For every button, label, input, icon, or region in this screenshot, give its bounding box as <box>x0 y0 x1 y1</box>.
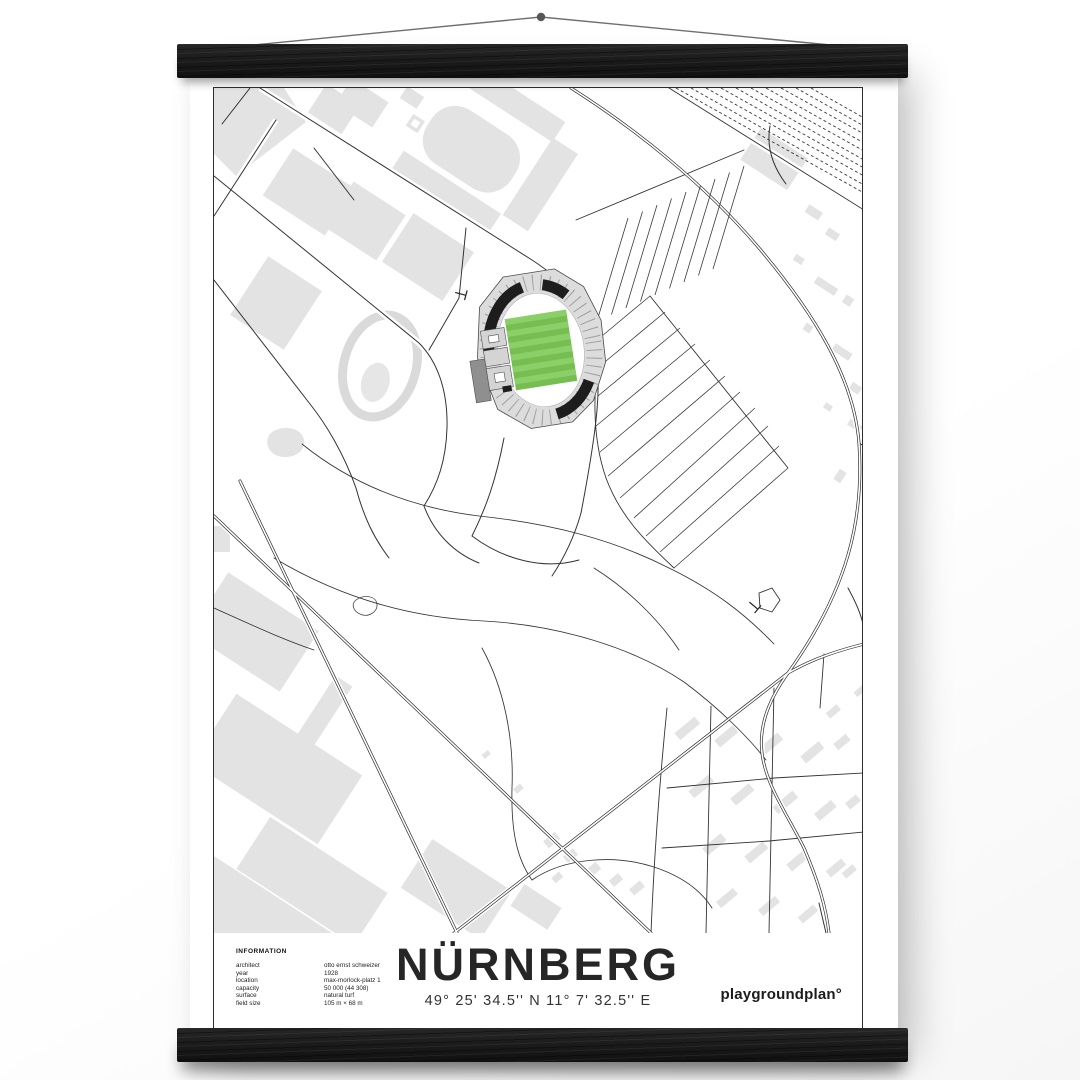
brand-logo: playgroundplan° <box>721 986 843 1003</box>
parking-rows-upper <box>597 166 744 321</box>
buildings-layer <box>214 88 863 933</box>
running-track <box>331 306 429 426</box>
nail-dot-icon <box>537 13 545 21</box>
pitch <box>505 310 577 391</box>
city-map <box>214 88 863 933</box>
residential-area <box>674 685 863 924</box>
mid-building-cluster <box>482 750 645 896</box>
stadium <box>458 263 616 436</box>
poster-frame: INFORMATION architectotto ernst schweize… <box>213 87 863 1034</box>
hanger-bar-bottom <box>177 1028 908 1062</box>
hanger-bar-top <box>177 44 908 78</box>
bridge-loop <box>759 588 780 612</box>
poster-title: NÜRNBERG <box>214 939 862 991</box>
poster: INFORMATION architectotto ernst schweize… <box>190 50 898 1048</box>
